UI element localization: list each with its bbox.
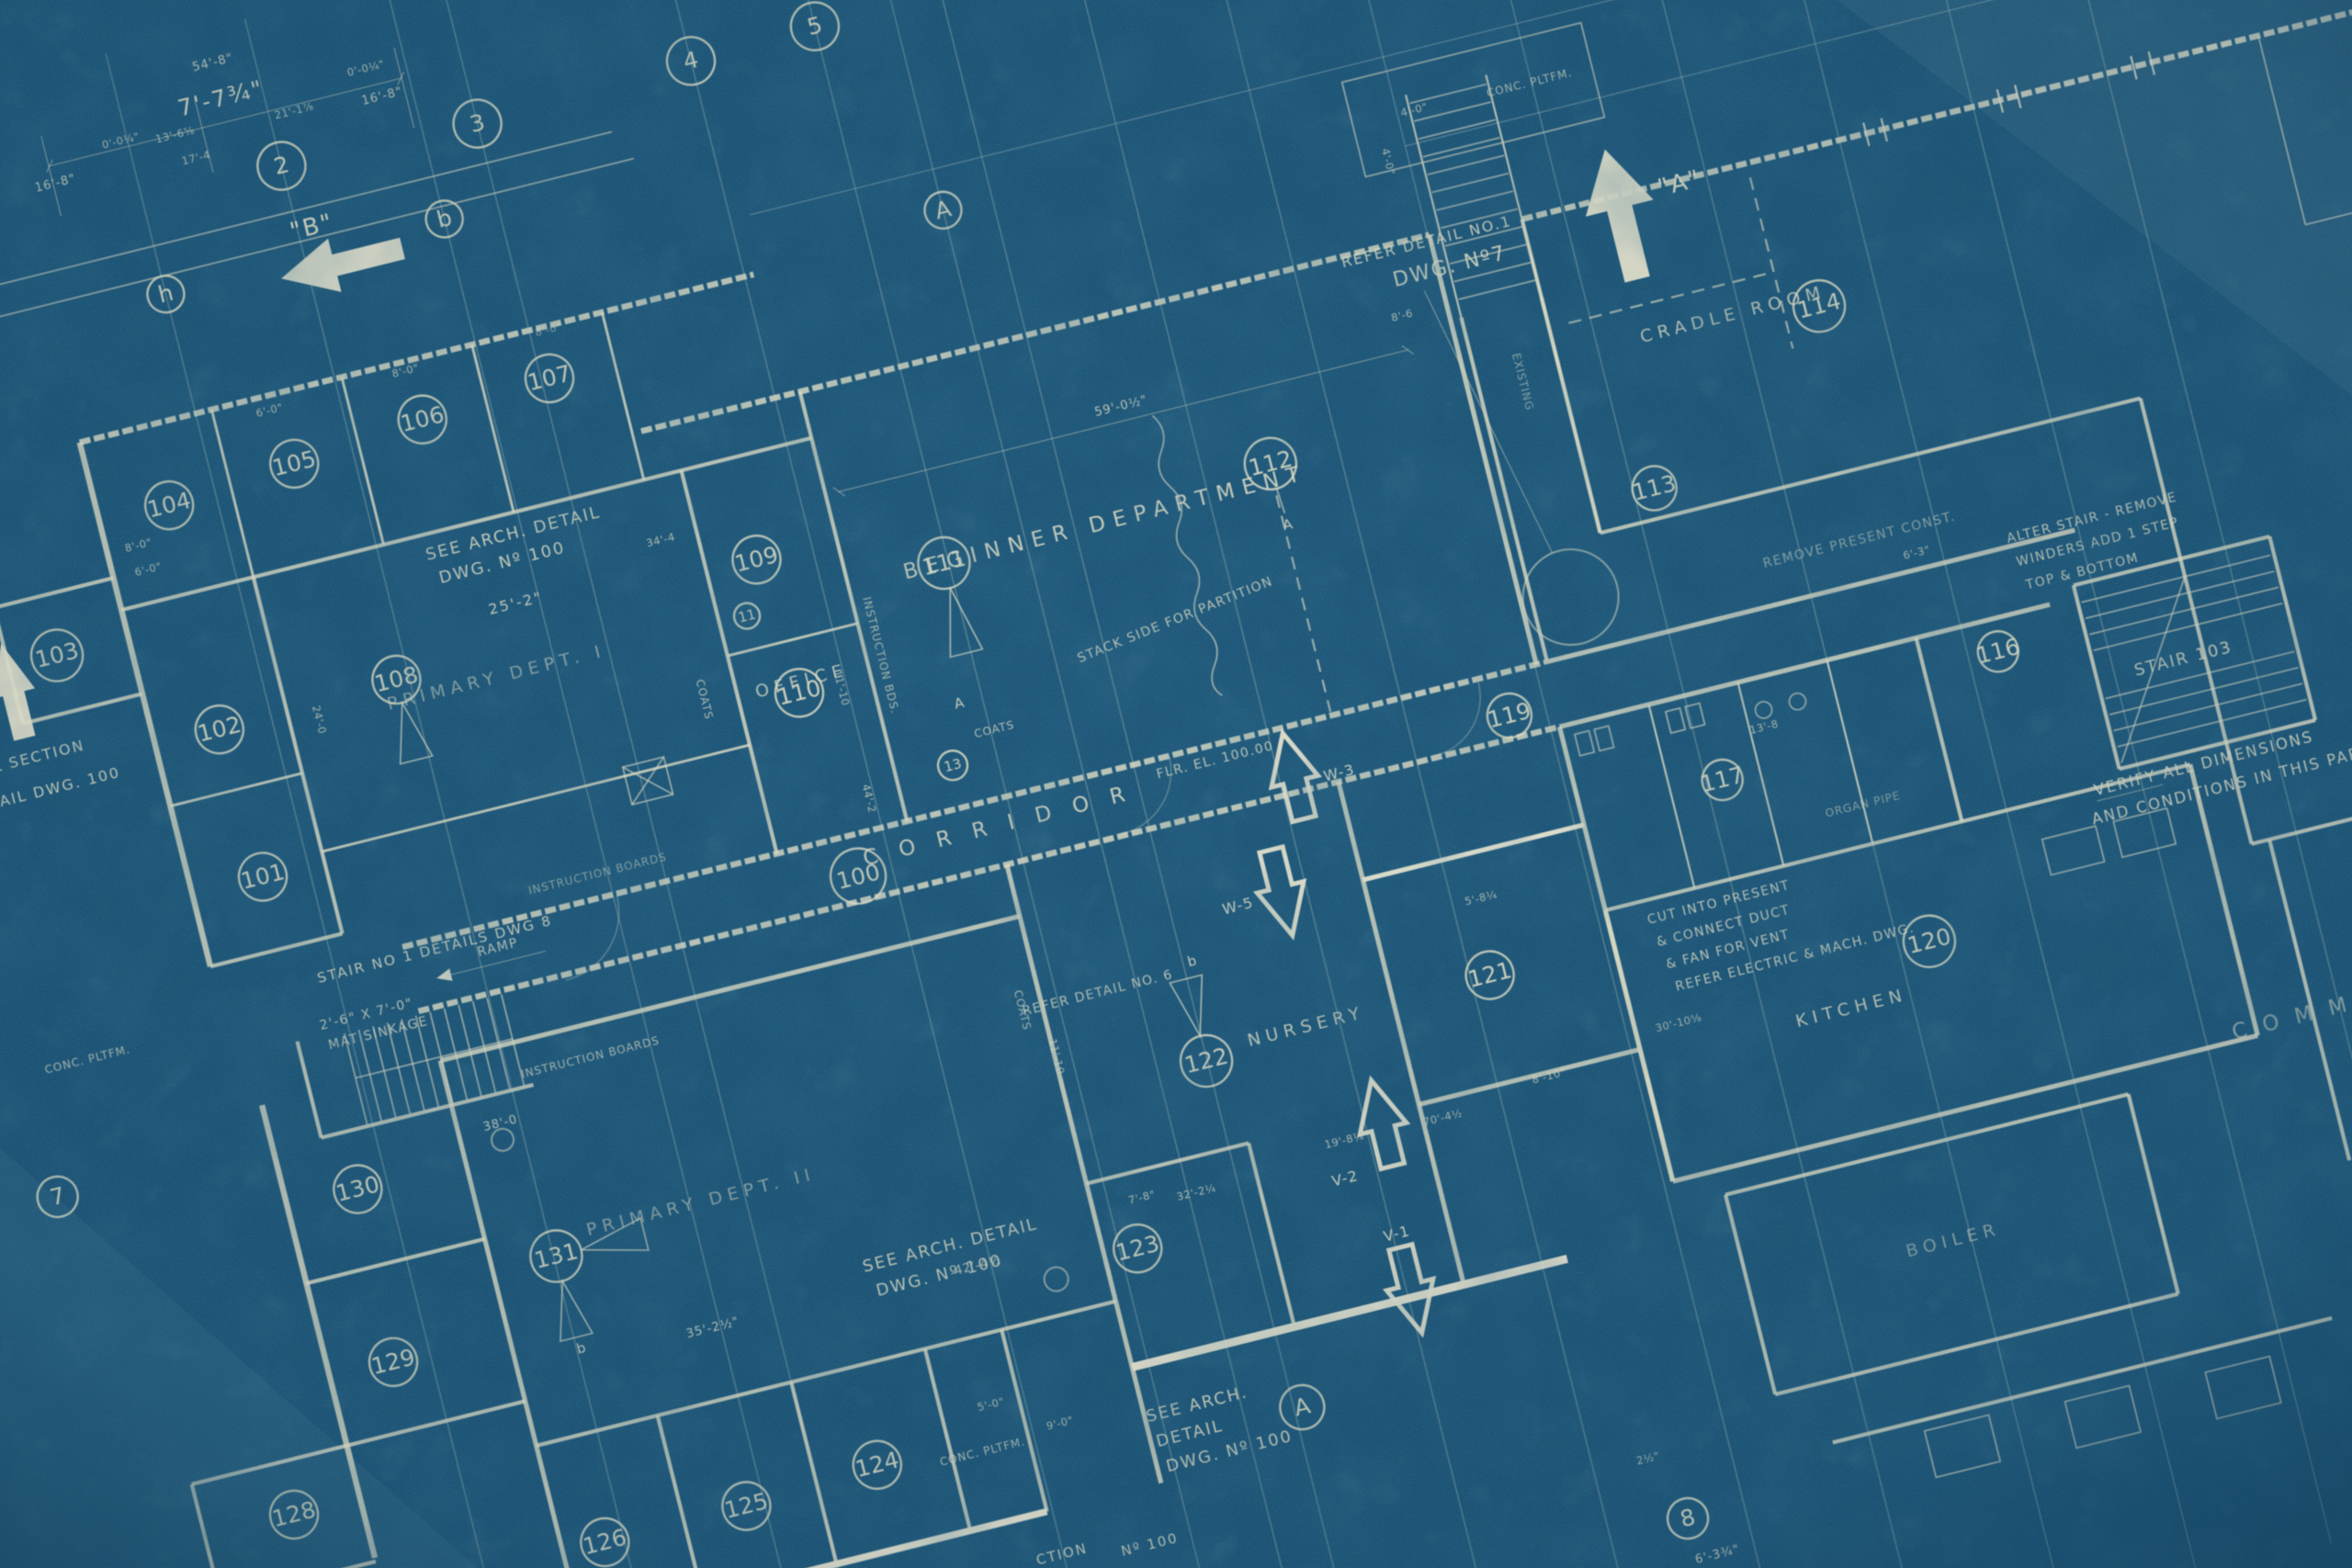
vignette <box>0 0 2352 1568</box>
blueprint-sheet: "A" "B" W-3 W-5 V-2 V-1 2 3 4 5 h b 7 8 … <box>0 0 2352 1568</box>
blueprint-drawing: "A" "B" W-3 W-5 V-2 V-1 2 3 4 5 h b 7 8 … <box>0 0 2352 1568</box>
